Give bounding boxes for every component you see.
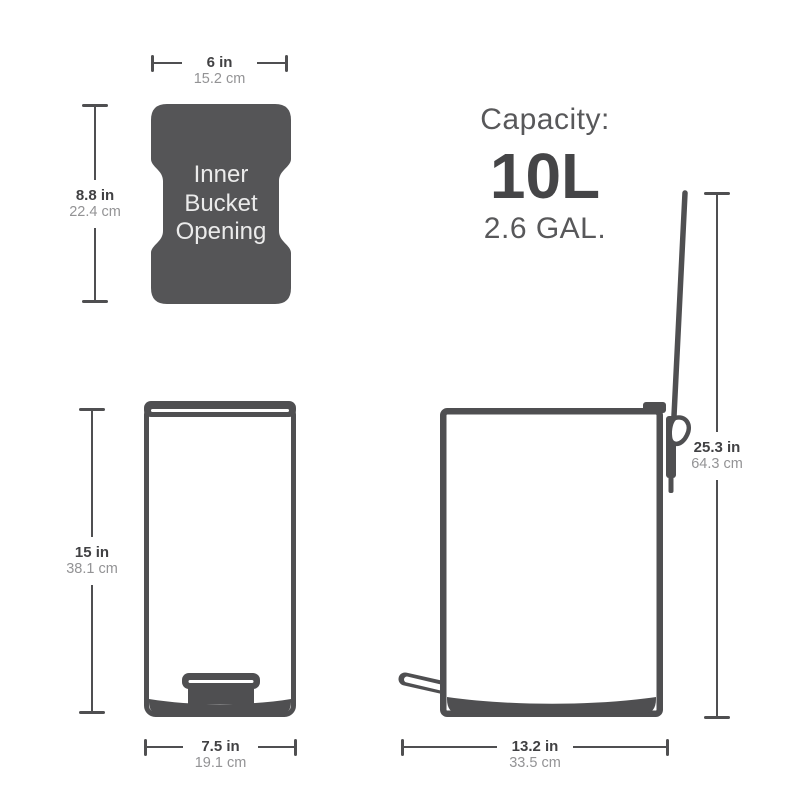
dimension-value-cm: 33.5 cm xyxy=(509,755,561,772)
dimension-front-height: 15 in 38.1 cm xyxy=(78,408,106,714)
dimension-label: 6 in 15.2 cm xyxy=(182,54,258,88)
dimension-value-inches: 15 in xyxy=(66,544,118,561)
dimension-line xyxy=(404,746,497,749)
dimension-line xyxy=(573,746,666,749)
inner-bucket-opening-shape: Inner Bucket Opening xyxy=(151,104,291,304)
dimension-label: 8.8 in 22.4 cm xyxy=(69,187,121,221)
dimension-line xyxy=(91,411,94,537)
dimension-endcap xyxy=(82,300,108,303)
capacity-heading: Capacity: xyxy=(425,103,665,137)
dimension-value-inches: 6 in xyxy=(194,54,246,71)
side-view-drawing xyxy=(395,185,730,730)
dimension-front-width: 7.5 in 19.1 cm xyxy=(144,738,297,756)
dimension-value-cm: 19.1 cm xyxy=(195,755,247,772)
dimension-endcap xyxy=(704,716,730,719)
dimension-value-inches: 7.5 in xyxy=(195,738,247,755)
dimension-value-cm: 64.3 cm xyxy=(691,456,743,473)
dimension-diagram: 6 in 15.2 cm 8.8 in 22.4 cm Inner Bucket… xyxy=(0,0,800,800)
dimension-line xyxy=(716,195,719,432)
dimension-bucket-height: 8.8 in 22.4 cm xyxy=(81,104,109,303)
dimension-line xyxy=(257,62,285,65)
dimension-line xyxy=(716,480,719,717)
dimension-label: 7.5 in 19.1 cm xyxy=(183,738,259,772)
dimension-line xyxy=(258,746,294,749)
dimension-line xyxy=(91,585,94,711)
inner-bucket-opening-label: Inner Bucket Opening xyxy=(151,104,291,304)
front-view-drawing xyxy=(130,396,310,726)
dimension-value-inches: 8.8 in xyxy=(69,187,121,204)
dimension-line xyxy=(94,228,97,301)
front-view-illustration xyxy=(130,396,310,726)
dimension-endcap xyxy=(666,739,669,756)
dimension-endcap xyxy=(285,55,288,72)
dimension-endcap xyxy=(79,711,105,714)
dimension-value-cm: 15.2 cm xyxy=(194,71,246,88)
dimension-label: 25.3 in 64.3 cm xyxy=(691,439,743,473)
dimension-value-inches: 25.3 in xyxy=(691,439,743,456)
dimension-bucket-width: 6 in 15.2 cm xyxy=(151,54,288,72)
dimension-side-depth: 13.2 in 33.5 cm xyxy=(401,738,669,756)
dimension-line xyxy=(154,62,182,65)
dimension-line xyxy=(147,746,183,749)
dimension-label: 13.2 in 33.5 cm xyxy=(497,738,573,772)
dimension-value-cm: 22.4 cm xyxy=(69,204,121,221)
dimension-endcap xyxy=(294,739,297,756)
dimension-side-height: 25.3 in 64.3 cm xyxy=(703,192,731,719)
dimension-value-cm: 38.1 cm xyxy=(66,561,118,578)
dimension-label: 15 in 38.1 cm xyxy=(66,544,118,578)
dimension-value-inches: 13.2 in xyxy=(509,738,561,755)
dimension-line xyxy=(94,107,97,180)
side-view-illustration xyxy=(395,185,730,730)
